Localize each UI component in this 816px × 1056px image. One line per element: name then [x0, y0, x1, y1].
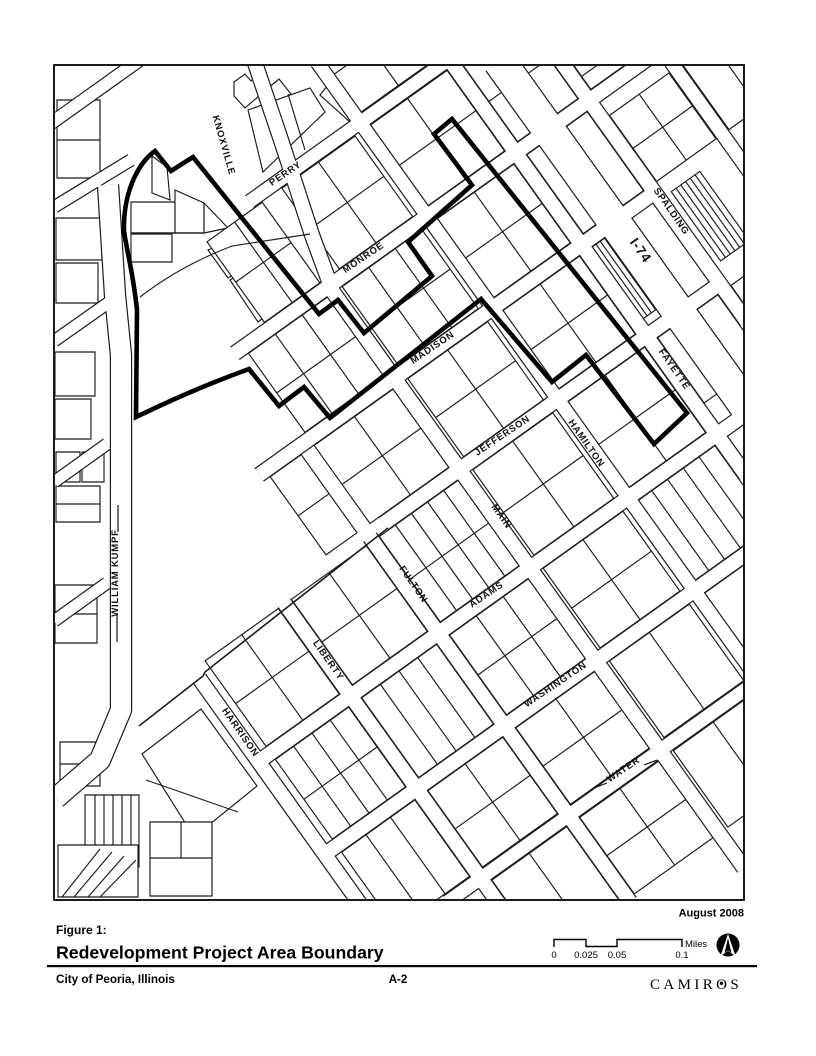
svg-text:CAMIROS: CAMIROS — [650, 977, 742, 993]
svg-text:0.05: 0.05 — [608, 950, 627, 961]
svg-text:Figure 1:: Figure 1: — [56, 923, 107, 937]
svg-text:WILLIAM KUMPF: WILLIAM KUMPF — [110, 529, 121, 616]
svg-text:0.1: 0.1 — [675, 950, 688, 961]
svg-text:0.025: 0.025 — [574, 950, 598, 961]
svg-text:Miles: Miles — [685, 939, 707, 950]
svg-text:August 2008: August 2008 — [679, 908, 744, 920]
svg-text:City of Peoria, Illinois: City of Peoria, Illinois — [56, 973, 175, 986]
svg-text:Redevelopment Project Area Bou: Redevelopment Project Area Boundary — [56, 943, 384, 963]
svg-text:A-2: A-2 — [389, 974, 408, 986]
svg-text:0: 0 — [551, 950, 556, 961]
